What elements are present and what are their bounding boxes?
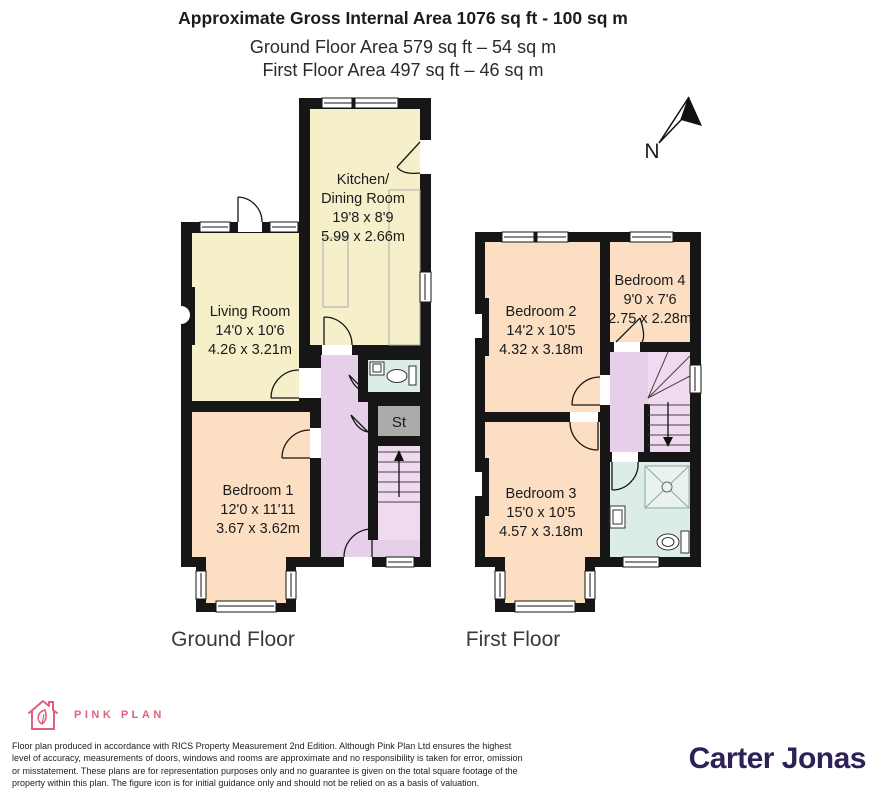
disclaimer-line: property within this plan. The figure ic…: [12, 777, 524, 789]
bedroom1-name: Bedroom 1: [223, 483, 294, 499]
chimney-bedroom3: [475, 458, 489, 516]
pink-plan-house-icon: [26, 698, 60, 732]
pink-plan-wordmark: PINK PLAN: [74, 709, 165, 721]
bath-sink-icon: [610, 506, 625, 528]
kitchen-name-1: Kitchen/: [337, 172, 390, 188]
living-dims-ft: 14'0 x 10'6: [215, 323, 284, 339]
bedroom3-dims-m: 4.57 x 3.18m: [499, 524, 583, 540]
bedroom1-dims-m: 3.67 x 3.62m: [216, 521, 300, 537]
ground-floor-label: Ground Floor: [133, 628, 333, 652]
disclaimer-text: Floor plan produced in accordance with R…: [12, 740, 524, 790]
pink-plan-logo: PINK PLAN: [26, 698, 165, 732]
living-dims-m: 4.26 x 3.21m: [208, 342, 292, 358]
floorplan-page: Approximate Gross Internal Area 1076 sq …: [0, 0, 882, 800]
bedroom2-dims-ft: 14'2 x 10'5: [506, 323, 575, 339]
bedroom3-name: Bedroom 3: [506, 486, 577, 502]
fireplace: [181, 287, 195, 345]
bedroom3-dims-ft: 15'0 x 10'5: [506, 505, 575, 521]
kitchen-name-2: Dining Room: [321, 191, 405, 207]
bedroom3-bay: [505, 557, 585, 603]
carter-jonas-logo: Carter Jonas: [640, 742, 866, 776]
kitchen-dims-ft: 19'8 x 8'9: [332, 210, 393, 226]
bedroom4-dims-ft: 9'0 x 7'6: [623, 292, 676, 308]
bedroom4-name: Bedroom 4: [615, 273, 686, 289]
north-arrow-icon: N: [644, 97, 702, 163]
wc-sink-icon: [370, 362, 384, 375]
ground-floor-plan: Kitchen/ Dining Room 19'8 x 8'9 5.99 x 2…: [181, 98, 431, 612]
bedroom4-dims-m: 2.75 x 2.28m: [608, 311, 692, 327]
shower-icon: [645, 466, 689, 508]
disclaimer-line: level of accuracy, measurements of doors…: [12, 752, 524, 764]
bedroom1-dims-ft: 12'0 x 11'11: [220, 502, 295, 518]
disclaimer-line: Floor plan produced in accordance with R…: [12, 740, 524, 752]
kitchen-room: [310, 109, 420, 345]
kitchen-dims-m: 5.99 x 2.66m: [321, 229, 405, 245]
disclaimer-line: or misstatement. These plans are for rep…: [12, 765, 524, 777]
chimney-bedroom2: [475, 298, 489, 356]
bedroom2-name: Bedroom 2: [506, 304, 577, 320]
bedroom2-dims-m: 4.32 x 3.18m: [499, 342, 583, 358]
stairs-wall: [368, 446, 378, 540]
living-name: Living Room: [210, 304, 291, 320]
north-label: N: [644, 140, 659, 163]
floorplan-drawing: N: [0, 0, 882, 700]
first-floor-plan: Bedroom 2 14'2 x 10'5 4.32 x 3.18m Bedro…: [475, 232, 701, 612]
bedroom1-bay: [206, 557, 286, 603]
store-label: St: [392, 414, 407, 431]
first-floor-label: First Floor: [413, 628, 613, 652]
